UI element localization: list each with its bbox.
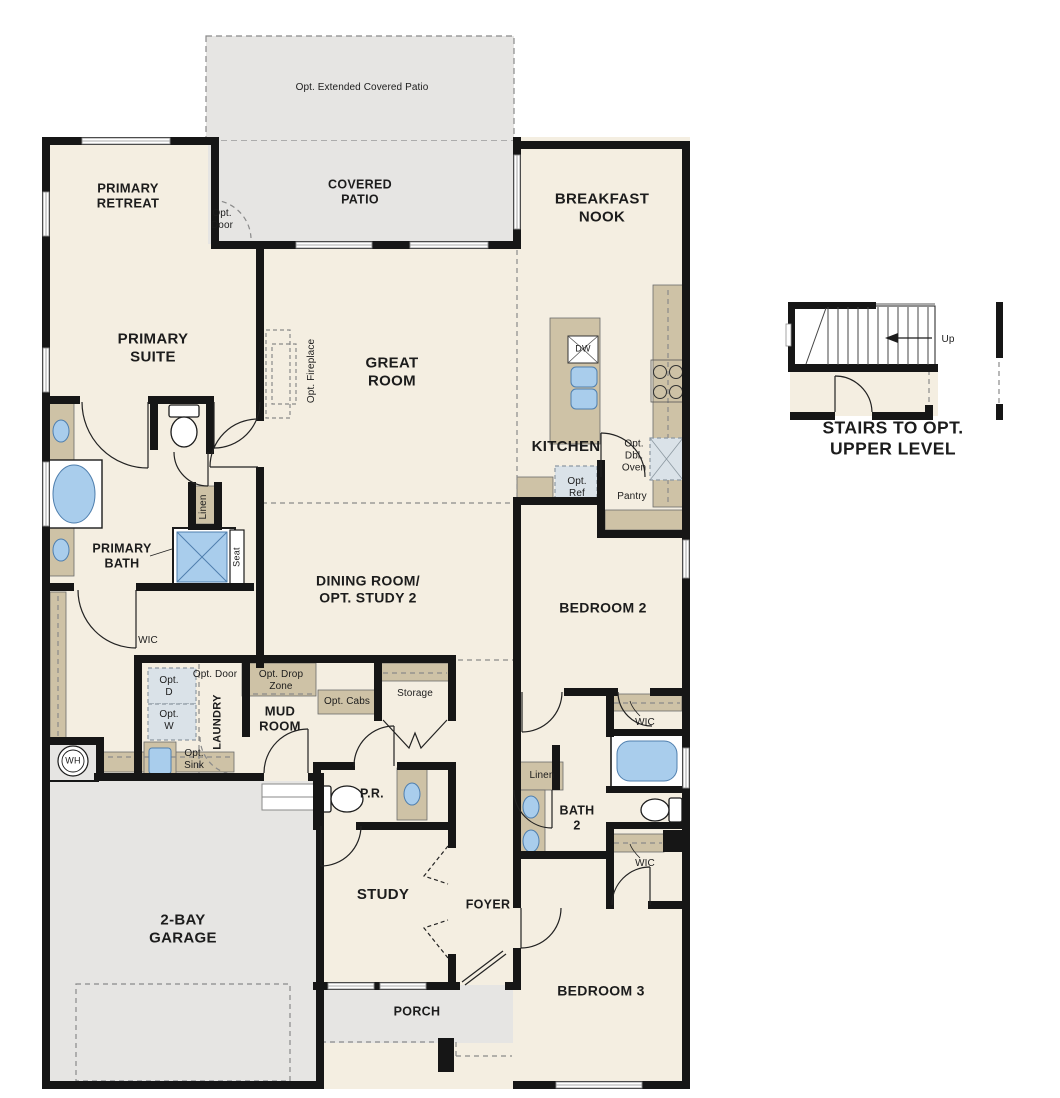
label-storage: Storage — [397, 688, 433, 700]
label-dw: DW — [575, 344, 591, 355]
label-wic-primary: WIC — [138, 635, 158, 647]
label-covered-patio: COVERED PATIO — [328, 177, 392, 207]
label-porch: PORCH — [394, 1005, 441, 1020]
sink — [53, 539, 69, 561]
label-laundry: LAUNDRY — [212, 694, 225, 749]
tub — [611, 735, 683, 787]
label-bedroom-2: BEDROOM 2 — [559, 600, 647, 617]
toilet — [169, 405, 199, 447]
label-opt-fireplace: Opt. Fireplace — [306, 339, 318, 403]
label-primary-suite: PRIMARY SUITE — [118, 330, 189, 365]
toilet — [641, 798, 682, 822]
label-wh: WH — [65, 756, 81, 767]
label-primary-retreat: PRIMARY RETREAT — [97, 181, 160, 212]
label-opt-drop-zone: Opt. Drop Zone — [259, 669, 303, 693]
sink — [523, 830, 539, 852]
label-opt-extended-covered-patio: Opt. Extended Covered Patio — [296, 82, 429, 94]
label-dining-room: DINING ROOM/ OPT. STUDY 2 — [316, 572, 420, 605]
label-wic-bedroom2: WIC — [635, 717, 655, 729]
label-seat: Seat — [232, 547, 243, 567]
pantry-shelf — [605, 510, 685, 530]
label-foyer: FOYER — [466, 898, 511, 913]
label-opt-door-laundry: Opt. Door — [193, 669, 237, 681]
label-study: STUDY — [357, 886, 409, 904]
label-great-room: GREAT ROOM — [366, 354, 419, 389]
garage-steps — [262, 784, 318, 810]
label-wic-bedroom3: WIC — [635, 858, 655, 870]
sink — [53, 420, 69, 442]
label-linen-primary: Linen — [198, 495, 210, 520]
toilet — [319, 786, 363, 812]
label-opt-w: Opt. W — [159, 709, 178, 733]
label-opt-cabs: Opt. Cabs — [324, 696, 370, 708]
storage-shelf — [381, 663, 449, 681]
label-breakfast-nook: BREAKFAST NOOK — [555, 190, 649, 225]
label-bath-2: BATH 2 — [560, 803, 595, 833]
label-pantry: Pantry — [617, 491, 647, 503]
label-primary-bath: PRIMARY BATH — [92, 541, 151, 571]
label-stairs-caption: STAIRS TO OPT. UPPER LEVEL — [810, 417, 977, 458]
wic2-shelf — [612, 834, 664, 852]
label-opt-dbl-oven: Opt. Dbl. Oven — [622, 438, 646, 473]
label-mud-room: MUD ROOM — [259, 704, 301, 735]
label-pr: P.R. — [360, 787, 384, 802]
label-opt-ref: Opt. Ref — [567, 476, 586, 500]
label-kitchen: KITCHEN — [532, 438, 601, 456]
wic2-chase — [663, 830, 683, 852]
label-garage: 2-BAY GARAGE — [149, 911, 217, 946]
label-opt-sink: Opt. Sink — [184, 748, 204, 772]
label-up: Up — [942, 334, 955, 346]
label-opt-door-patio: Opt. Door — [211, 208, 233, 232]
label-opt-d: Opt. D — [159, 675, 178, 699]
floor-plan-page: Opt. Extended Covered Patio COVERED PATI… — [0, 0, 1060, 1098]
sink — [523, 796, 539, 818]
label-linen-bath2: Linen — [530, 770, 555, 782]
sink — [404, 783, 420, 805]
opt-sink-basin — [149, 748, 171, 774]
label-bedroom-3: BEDROOM 3 — [557, 983, 645, 1000]
